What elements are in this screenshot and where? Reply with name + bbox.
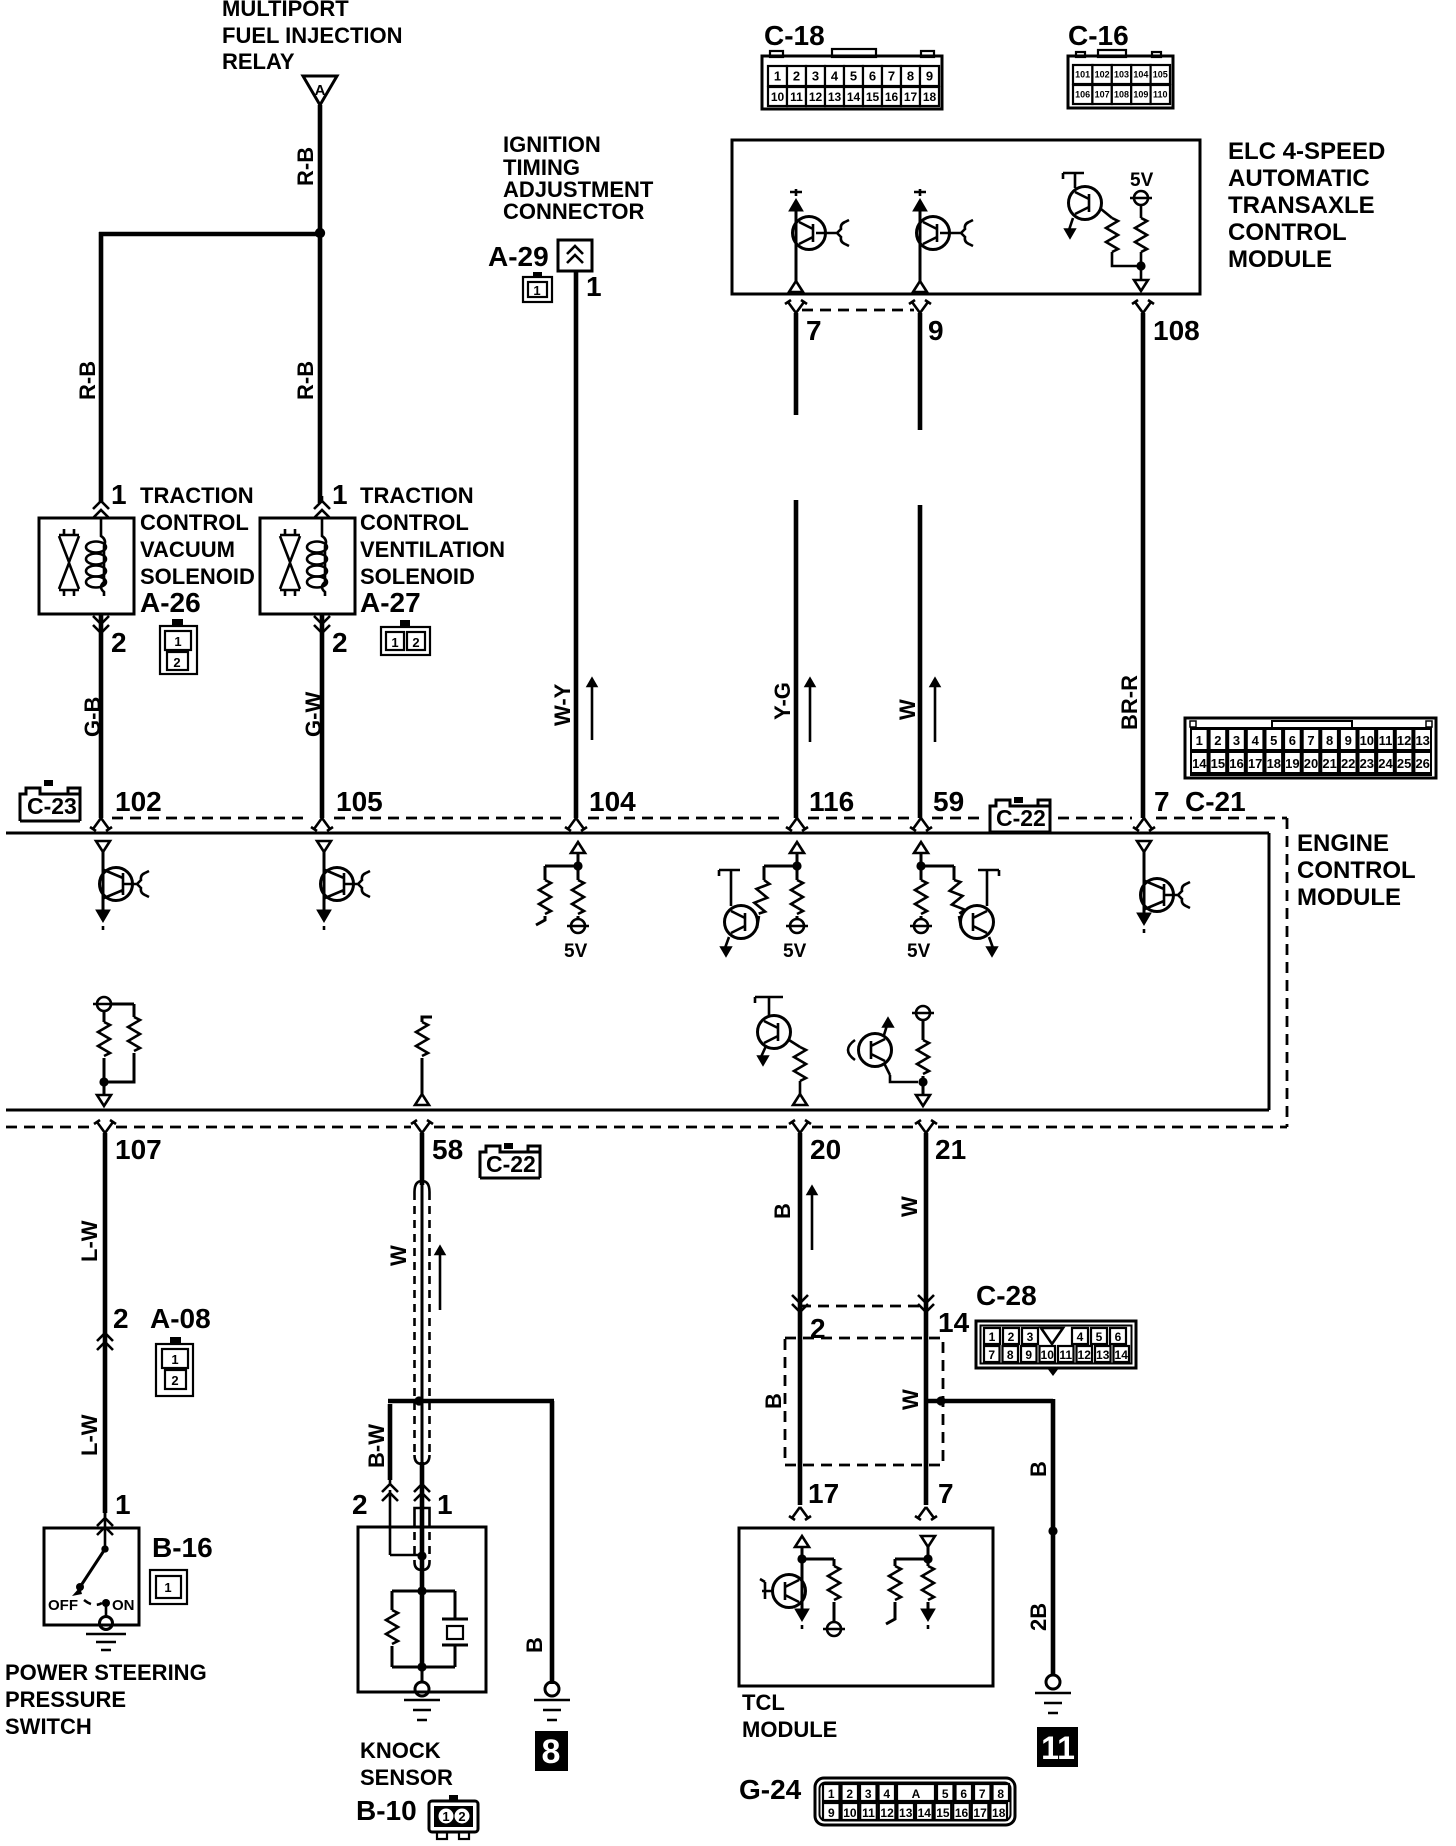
svg-text:A: A (912, 1787, 921, 1801)
svg-text:A-27: A-27 (360, 587, 421, 618)
svg-text:CONTROL: CONTROL (360, 510, 469, 535)
svg-text:24: 24 (1378, 756, 1393, 771)
svg-text:B: B (770, 1203, 795, 1219)
svg-text:14: 14 (847, 90, 861, 104)
svg-text:11: 11 (790, 90, 803, 104)
svg-text:A-29: A-29 (488, 241, 549, 272)
svg-text:MODULE: MODULE (1297, 884, 1401, 911)
svg-text:4: 4 (1252, 733, 1260, 748)
svg-text:2: 2 (332, 627, 348, 658)
svg-text:104: 104 (1133, 70, 1148, 80)
svg-text:C-23: C-23 (27, 793, 77, 819)
svg-text:2: 2 (173, 655, 180, 670)
svg-text:TRANSAXLE: TRANSAXLE (1228, 192, 1375, 219)
svg-text:7: 7 (888, 69, 895, 84)
svg-text:1: 1 (586, 271, 602, 302)
svg-text:L-W: L-W (77, 1220, 102, 1262)
svg-text:8: 8 (542, 1733, 561, 1771)
svg-text:13: 13 (899, 1806, 913, 1820)
svg-text:MODULE: MODULE (742, 1717, 837, 1742)
svg-text:B: B (1026, 1461, 1051, 1477)
svg-text:A: A (315, 82, 326, 99)
svg-text:W: W (897, 1196, 922, 1217)
svg-text:5: 5 (1096, 1330, 1103, 1344)
svg-text:MULTIPORT: MULTIPORT (222, 0, 349, 21)
svg-text:4: 4 (831, 69, 839, 84)
svg-text:G-B: G-B (80, 697, 105, 737)
svg-text:1: 1 (828, 1787, 835, 1801)
svg-text:SWITCH: SWITCH (5, 1714, 92, 1739)
svg-text:5: 5 (850, 69, 857, 84)
svg-text:SOLENOID: SOLENOID (360, 564, 475, 589)
svg-text:22: 22 (1341, 756, 1355, 771)
svg-text:5V: 5V (1130, 170, 1154, 191)
svg-text:B-10: B-10 (356, 1795, 417, 1826)
svg-text:1: 1 (533, 283, 540, 298)
svg-text:18: 18 (992, 1806, 1006, 1820)
svg-text:11: 11 (1041, 1730, 1075, 1766)
svg-text:BR-R: BR-R (1117, 675, 1142, 730)
svg-text:109: 109 (1133, 90, 1148, 100)
svg-text:110: 110 (1153, 90, 1168, 100)
svg-text:C-21: C-21 (1185, 786, 1246, 817)
svg-text:108: 108 (1114, 90, 1129, 100)
svg-text:2: 2 (113, 1303, 129, 1334)
svg-text:13: 13 (1415, 733, 1429, 748)
svg-text:5V: 5V (907, 941, 931, 962)
svg-text:7: 7 (938, 1478, 954, 1509)
svg-text:4: 4 (1077, 1330, 1084, 1344)
svg-text:9: 9 (1345, 733, 1352, 748)
svg-text:G-24: G-24 (739, 1774, 802, 1805)
svg-text:12: 12 (809, 90, 823, 104)
svg-text:2: 2 (793, 69, 800, 84)
svg-text:W: W (898, 1389, 923, 1410)
svg-text:21: 21 (935, 1134, 966, 1165)
svg-text:CONTROL: CONTROL (140, 510, 249, 535)
svg-text:MODULE: MODULE (1228, 246, 1332, 273)
svg-text:7: 7 (1307, 733, 1314, 748)
svg-text:101: 101 (1075, 70, 1090, 80)
svg-text:AUTOMATIC: AUTOMATIC (1228, 165, 1370, 192)
svg-text:12: 12 (880, 1806, 894, 1820)
svg-text:1: 1 (442, 1809, 449, 1824)
svg-text:26: 26 (1415, 756, 1429, 771)
svg-text:59: 59 (933, 786, 964, 817)
svg-text:3: 3 (812, 69, 819, 84)
svg-text:58: 58 (432, 1134, 463, 1165)
svg-text:1: 1 (774, 69, 781, 84)
svg-text:17: 17 (904, 90, 918, 104)
svg-text:14: 14 (918, 1806, 932, 1820)
svg-text:102: 102 (115, 786, 162, 817)
svg-text:IGNITION: IGNITION (503, 132, 601, 157)
svg-text:VACUUM: VACUUM (140, 537, 235, 562)
svg-text:23: 23 (1360, 756, 1374, 771)
svg-text:5: 5 (942, 1787, 949, 1801)
svg-text:CONNECTOR: CONNECTOR (503, 199, 644, 224)
svg-text:15: 15 (1211, 756, 1225, 771)
svg-text:9: 9 (1025, 1348, 1032, 1362)
svg-text:9: 9 (928, 315, 944, 346)
svg-text:9: 9 (828, 1806, 835, 1820)
svg-text:103: 103 (1114, 70, 1129, 80)
svg-text:105: 105 (336, 786, 383, 817)
svg-text:10: 10 (1041, 1348, 1055, 1362)
svg-text:8: 8 (997, 1787, 1004, 1801)
svg-text:W: W (895, 699, 920, 720)
svg-text:B: B (522, 1637, 547, 1653)
svg-text:20: 20 (810, 1134, 841, 1165)
svg-text:8: 8 (907, 69, 914, 84)
svg-text:TRACTION: TRACTION (360, 483, 474, 508)
svg-text:CONTROL: CONTROL (1297, 857, 1416, 884)
svg-text:ON: ON (112, 1597, 135, 1614)
svg-text:B-W: B-W (364, 1424, 389, 1468)
svg-text:1: 1 (115, 1489, 131, 1520)
svg-text:16: 16 (1229, 756, 1243, 771)
svg-text:19: 19 (1285, 756, 1299, 771)
svg-text:A-26: A-26 (140, 587, 201, 618)
svg-text:25: 25 (1397, 756, 1411, 771)
svg-text:2: 2 (846, 1787, 853, 1801)
svg-text:12: 12 (1078, 1348, 1092, 1362)
svg-text:18: 18 (1267, 756, 1281, 771)
svg-text:104: 104 (589, 786, 636, 817)
svg-text:5V: 5V (783, 941, 807, 962)
svg-text:11: 11 (1379, 733, 1393, 748)
svg-text:2: 2 (171, 1373, 178, 1388)
svg-text:6: 6 (869, 69, 876, 84)
svg-text:116: 116 (809, 786, 854, 817)
svg-text:7: 7 (979, 1787, 986, 1801)
svg-text:9: 9 (926, 69, 933, 84)
svg-text:7: 7 (806, 315, 822, 346)
svg-text:4: 4 (883, 1787, 890, 1801)
svg-text:16: 16 (885, 90, 899, 104)
svg-text:A-08: A-08 (150, 1303, 211, 1334)
svg-text:SENSOR: SENSOR (360, 1765, 453, 1790)
svg-text:10: 10 (771, 90, 785, 104)
svg-text:ELC 4-SPEED: ELC 4-SPEED (1228, 138, 1385, 165)
svg-text:L-W: L-W (77, 1414, 102, 1456)
svg-text:10: 10 (1360, 733, 1374, 748)
svg-text:2: 2 (111, 627, 127, 658)
svg-text:102: 102 (1095, 70, 1110, 80)
svg-text:14: 14 (1115, 1348, 1129, 1362)
svg-text:PRESSURE: PRESSURE (5, 1687, 126, 1712)
svg-text:1: 1 (174, 634, 181, 649)
svg-text:2: 2 (458, 1809, 465, 1824)
svg-text:R-B: R-B (75, 361, 100, 400)
svg-text:2B: 2B (1026, 1603, 1051, 1631)
svg-text:B-16: B-16 (152, 1532, 213, 1563)
svg-text:3: 3 (1233, 733, 1240, 748)
svg-text:2: 2 (352, 1489, 368, 1520)
svg-text:KNOCK: KNOCK (360, 1738, 441, 1763)
svg-text:3: 3 (1027, 1330, 1034, 1344)
svg-text:C-16: C-16 (1068, 20, 1129, 51)
svg-text:106: 106 (1075, 90, 1090, 100)
svg-text:B: B (761, 1393, 786, 1409)
svg-text:7: 7 (1154, 786, 1170, 817)
svg-text:16: 16 (955, 1806, 969, 1820)
svg-text:C-22: C-22 (996, 805, 1046, 831)
svg-text:C-22: C-22 (486, 1151, 536, 1177)
svg-text:POWER STEERING: POWER STEERING (5, 1660, 207, 1685)
svg-text:7: 7 (988, 1348, 995, 1362)
svg-text:18: 18 (923, 90, 937, 104)
svg-text:8: 8 (1007, 1348, 1014, 1362)
svg-text:6: 6 (1115, 1330, 1122, 1344)
svg-text:1: 1 (111, 479, 127, 510)
svg-text:CONTROL: CONTROL (1228, 219, 1347, 246)
svg-text:C-28: C-28 (976, 1280, 1037, 1311)
svg-text:108: 108 (1153, 315, 1200, 346)
svg-text:13: 13 (828, 90, 842, 104)
svg-text:R-B: R-B (293, 361, 318, 400)
svg-text:12: 12 (1397, 733, 1411, 748)
svg-text:2: 2 (412, 635, 419, 650)
svg-text:1: 1 (1196, 733, 1203, 748)
svg-text:8: 8 (1326, 733, 1333, 748)
svg-text:15: 15 (936, 1806, 950, 1820)
svg-text:2: 2 (1008, 1330, 1015, 1344)
svg-text:Y-G: Y-G (770, 682, 795, 720)
svg-text:TRACTION: TRACTION (140, 483, 254, 508)
svg-text:14: 14 (1192, 756, 1207, 771)
svg-text:RELAY: RELAY (222, 49, 295, 74)
svg-text:107: 107 (115, 1134, 162, 1165)
svg-text:TCL: TCL (742, 1690, 785, 1715)
svg-text:ENGINE: ENGINE (1297, 830, 1389, 857)
svg-text:1: 1 (164, 1580, 171, 1595)
svg-text:5V: 5V (564, 941, 588, 962)
svg-text:G-W: G-W (301, 692, 326, 737)
svg-text:2: 2 (1214, 733, 1221, 748)
svg-text:10: 10 (843, 1806, 857, 1820)
svg-text:11: 11 (862, 1806, 875, 1820)
svg-text:105: 105 (1153, 70, 1168, 80)
svg-text:3: 3 (865, 1787, 872, 1801)
svg-text:107: 107 (1095, 90, 1110, 100)
svg-text:14: 14 (938, 1307, 970, 1338)
svg-text:R-B: R-B (293, 147, 318, 186)
svg-text:13: 13 (1096, 1348, 1110, 1362)
svg-text:VENTILATION: VENTILATION (360, 537, 505, 562)
svg-text:21: 21 (1322, 756, 1336, 771)
svg-text:6: 6 (960, 1787, 967, 1801)
svg-text:17: 17 (808, 1478, 839, 1509)
svg-text:17: 17 (1248, 756, 1262, 771)
svg-text:SOLENOID: SOLENOID (140, 564, 255, 589)
svg-text:W-Y: W-Y (550, 683, 575, 726)
svg-text:OFF: OFF (48, 1597, 78, 1614)
svg-text:20: 20 (1304, 756, 1318, 771)
svg-text:1: 1 (989, 1330, 996, 1344)
svg-text:1: 1 (332, 479, 348, 510)
svg-text:15: 15 (866, 90, 880, 104)
svg-text:C-18: C-18 (764, 20, 825, 51)
svg-text:1: 1 (171, 1352, 178, 1367)
svg-text:W: W (386, 1245, 411, 1266)
svg-text:5: 5 (1270, 733, 1277, 748)
svg-text:1: 1 (391, 635, 398, 650)
svg-text:FUEL INJECTION: FUEL INJECTION (222, 23, 403, 48)
svg-text:17: 17 (973, 1806, 987, 1820)
svg-text:6: 6 (1289, 733, 1296, 748)
svg-text:11: 11 (1059, 1348, 1072, 1362)
svg-text:1: 1 (437, 1489, 453, 1520)
